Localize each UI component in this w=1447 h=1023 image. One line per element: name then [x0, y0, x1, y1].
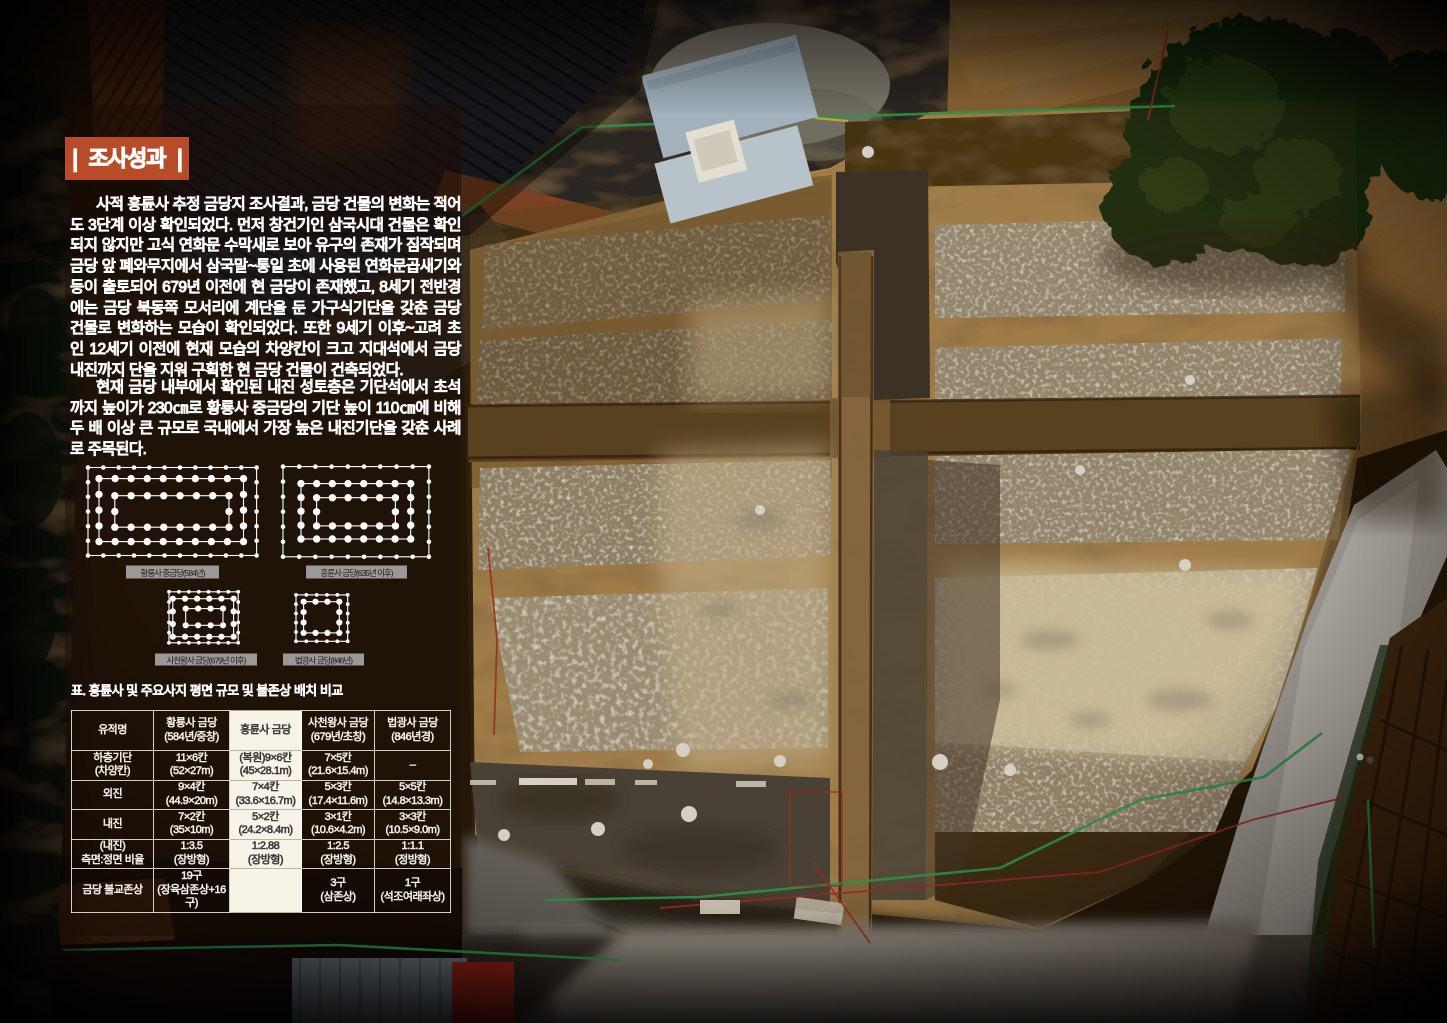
- svg-text:흥륜사 금당(635년 이후): 흥륜사 금당(635년 이후): [320, 568, 393, 578]
- svg-text:황룡사 중금당(584년): 황룡사 중금당(584년): [141, 568, 206, 578]
- svg-text:법광사 금당(846년): 법광사 금당(846년): [295, 656, 353, 666]
- svg-text:사천왕사 금당(679년 이후): 사천왕사 금당(679년 이후): [167, 656, 247, 666]
